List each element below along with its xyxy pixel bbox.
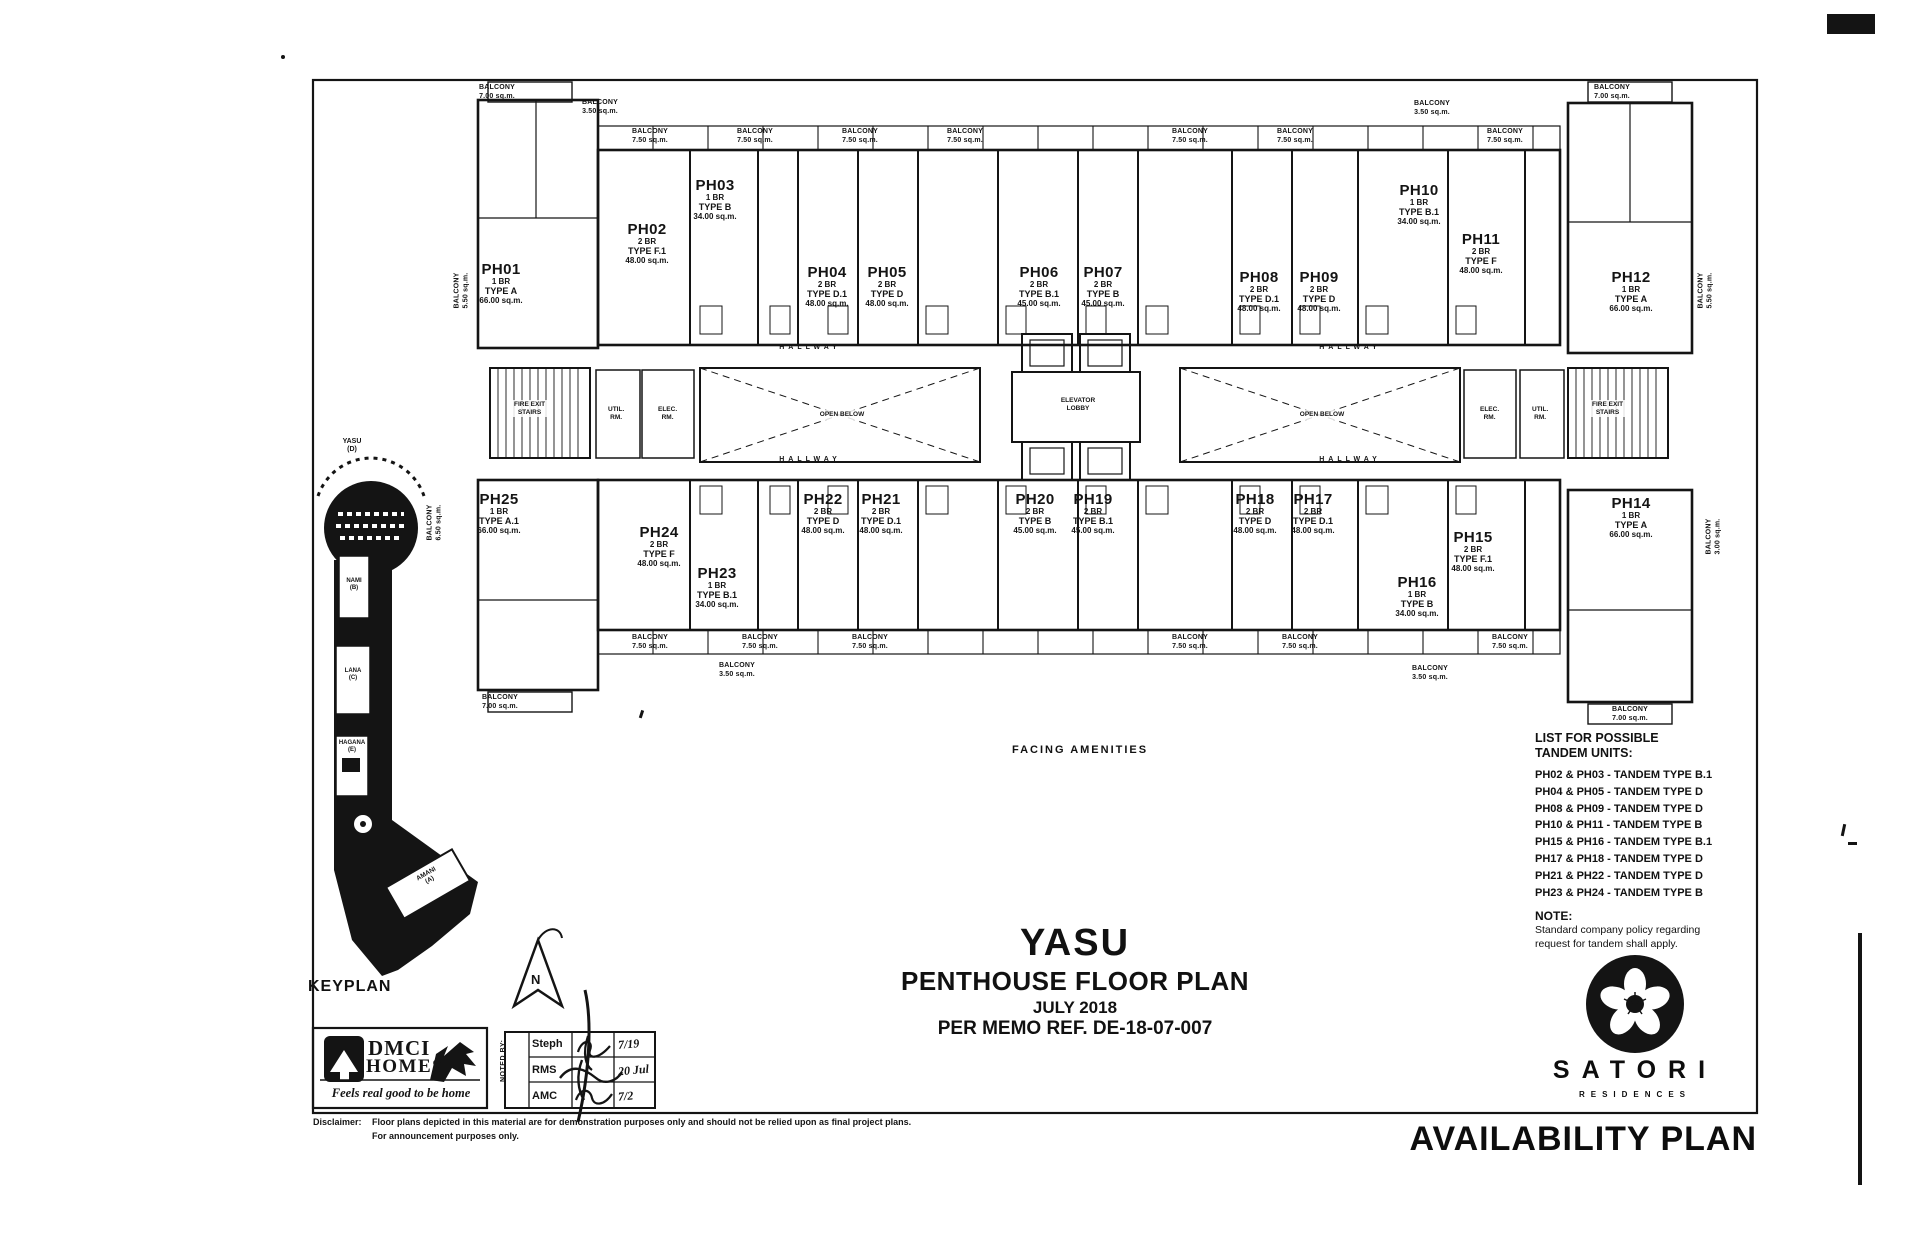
fire-exit-stairs-label: FIRE EXIT STAIRS [512,400,547,417]
tandem-heading: LIST FOR POSSIBLE [1535,731,1765,746]
elec-room-label: ELEC. RM. [656,405,679,422]
dmci-wordmark-line2: HOMES [366,1056,444,1078]
noted-by-date: 7/2 [617,1088,634,1104]
open-below-label: OPEN BELOW [1280,410,1364,420]
elec-room-label: ELEC. RM. [1478,405,1501,422]
tandem-item: PH10 & PH11 - TANDEM TYPE B [1535,817,1765,834]
unit-label-ph06: PH06 2 BR TYPE B.1 45.00 sq.m. [1008,265,1070,308]
balcony-label: BALCONY 7.50 sq.m. [615,128,685,145]
unit-label-ph23: PH23 1 BR TYPE B.1 34.00 sq.m. [686,566,748,609]
balcony-label: BALCONY 3.50 sq.m. [565,99,635,116]
keyplan-building-lana: LANA (C) [336,668,370,682]
hallway-label: HALLWAY [1285,344,1415,352]
signature-row1 [578,1036,610,1070]
tandem-item: PH21 & PH22 - TANDEM TYPE D [1535,868,1765,885]
balcony-label: BALCONY 7.50 sq.m. [720,128,790,145]
balcony-label: BALCONY 7.00 sq.m. [465,694,535,711]
pen-stroke [578,990,589,1122]
hallway-label: HALLWAY [745,344,875,352]
unit-label-ph07: PH07 2 BR TYPE B 45.00 sq.m. [1072,265,1134,308]
dmci-tagline: Feels real good to be home [318,1086,484,1101]
noted-by-name: Steph [532,1038,563,1050]
noted-by-name: RMS [532,1064,556,1076]
unit-label-ph02: PH02 2 BR TYPE F.1 48.00 sq.m. [616,222,678,265]
unit-label-ph09: PH09 2 BR TYPE D 48.00 sq.m. [1288,270,1350,313]
open-below-label: OPEN BELOW [800,410,884,420]
disclaimer-label: Disclaimer: [313,1117,362,1127]
plan-title: PENTHOUSE FLOOR PLAN [880,966,1270,997]
util-room-label: UTIL. RM. [1530,405,1550,422]
unit-label-ph17: PH17 2 BR TYPE D.1 48.00 sq.m. [1282,492,1344,535]
tandem-item: PH08 & PH09 - TANDEM TYPE D [1535,801,1765,818]
unit-label-ph18: PH18 2 BR TYPE D 48.00 sq.m. [1224,492,1286,535]
unit-label-ph22: PH22 2 BR TYPE D 48.00 sq.m. [792,492,854,535]
unit-label-ph21: PH21 2 BR TYPE D.1 48.00 sq.m. [850,492,912,535]
balcony-label: BALCONY 7.50 sq.m. [1155,128,1225,145]
balcony-label: BALCONY 7.00 sq.m. [1577,84,1647,101]
satori-wordmark: SATORI [1525,1056,1745,1085]
satori-logo-icon [1586,955,1684,1053]
balcony-label: BALCONY 7.50 sq.m. [725,634,795,651]
hallway-label: HALLWAY [1285,456,1415,464]
noted-by-name: AMC [532,1090,557,1102]
tower-ph01 [478,82,598,348]
balcony-label: BALCONY 7.00 sq.m. [462,84,532,101]
north-arrow-icon [514,929,562,1006]
balcony-label-vertical: BALCONY 5.50 sq.m. [454,256,471,326]
unit-label-ph16: PH16 1 BR TYPE B 34.00 sq.m. [1386,575,1448,618]
balcony-label: BALCONY 3.50 sq.m. [1395,665,1465,682]
noted-by-label: NOTED BY: [500,1040,507,1082]
availability-plan-sheet: PH01 1 BR TYPE A 66.00 sq.m. PH02 2 BR T… [0,0,1920,1255]
unit-label-ph05: PH05 2 BR TYPE D 48.00 sq.m. [856,265,918,308]
unit-label-ph08: PH08 2 BR TYPE D.1 48.00 sq.m. [1228,270,1290,313]
balcony-label-vertical: BALCONY 5.50 sq.m. [1698,256,1715,326]
top-wing [598,126,1560,345]
elevator-lobby-label: ELEVATOR LOBBY [1044,396,1112,413]
availability-plan-title: AVAILABILITY PLAN [1409,1120,1757,1159]
balcony-label: BALCONY 3.50 sq.m. [702,662,772,679]
balcony-label: BALCONY 7.50 sq.m. [930,128,1000,145]
unit-label-ph01: PH01 1 BR TYPE A 66.00 sq.m. [470,262,532,305]
north-label: N [531,972,540,987]
disclaimer-text: For announcement purposes only. [372,1131,519,1141]
tandem-item: PH04 & PH05 - TANDEM TYPE D [1535,784,1765,801]
keyplan-building-hagana: HAGANA (E) [334,740,370,754]
tandem-heading: TANDEM UNITS: [1535,746,1765,761]
tandem-item: PH17 & PH18 - TANDEM TYPE D [1535,851,1765,868]
fire-exit-stairs-label: FIRE EXIT STAIRS [1590,400,1625,417]
memo-reference: PER MEMO REF. DE-18-07-007 [880,1018,1270,1040]
balcony-label: BALCONY 7.50 sq.m. [1265,634,1335,651]
unit-label-ph19: PH19 2 BR TYPE B.1 45.00 sq.m. [1062,492,1124,535]
tandem-item: PH02 & PH03 - TANDEM TYPE B.1 [1535,767,1765,784]
project-name: YASU [880,922,1270,965]
balcony-label: BALCONY 7.50 sq.m. [1470,128,1540,145]
disclaimer-text: Floor plans depicted in this material ar… [372,1117,1092,1127]
balcony-label: BALCONY 7.50 sq.m. [1260,128,1330,145]
tandem-item: PH15 & PH16 - TANDEM TYPE B.1 [1535,834,1765,851]
balcony-label: BALCONY 3.50 sq.m. [1397,100,1467,117]
unit-label-ph25: PH25 1 BR TYPE A.1 66.00 sq.m. [468,492,530,535]
unit-label-ph20: PH20 2 BR TYPE B 45.00 sq.m. [1004,492,1066,535]
balcony-label: BALCONY 7.50 sq.m. [615,634,685,651]
keyplan-graphic [318,458,478,976]
tandem-note: request for tandem shall apply. [1535,937,1765,951]
balcony-label: BALCONY 7.50 sq.m. [1155,634,1225,651]
noted-by-date: 20 Jul [617,1062,649,1080]
unit-label-ph12: PH12 1 BR TYPE A 66.00 sq.m. [1600,270,1662,313]
balcony-label: BALCONY 7.00 sq.m. [1595,706,1665,723]
keyplan-building-yasu: YASU (D) [330,438,374,454]
facing-amenities-label: FACING AMENITIES [1012,744,1148,756]
satori-residences-label: RESIDENCES [1525,1090,1745,1099]
unit-label-ph14: PH14 1 BR TYPE A 66.00 sq.m. [1600,496,1662,539]
plan-date: JULY 2018 [880,998,1270,1018]
hallway-label: HALLWAY [745,456,875,464]
tandem-note: Standard company policy regarding [1535,923,1765,937]
tandem-item: PH23 & PH24 - TANDEM TYPE B [1535,885,1765,902]
unit-label-ph24: PH24 2 BR TYPE F 48.00 sq.m. [628,525,690,568]
util-room-label: UTIL. RM. [606,405,626,422]
balcony-label: BALCONY 7.50 sq.m. [835,634,905,651]
unit-label-ph04: PH04 2 BR TYPE D.1 48.00 sq.m. [796,265,858,308]
balcony-label-vertical: BALCONY 6.50 sq.m. [427,488,444,558]
keyplan-title: KEYPLAN [308,978,391,996]
unit-label-ph10: PH10 1 BR TYPE B.1 34.00 sq.m. [1388,183,1450,226]
tandem-units-list: LIST FOR POSSIBLE TANDEM UNITS: PH02 & P… [1535,731,1765,951]
balcony-label: BALCONY 7.50 sq.m. [1475,634,1545,651]
keyplan-building-nami: NAMI (B) [339,578,369,592]
balcony-label-vertical: BALCONY 3.00 sq.m. [1706,502,1723,572]
unit-label-ph03: PH03 1 BR TYPE B 34.00 sq.m. [684,178,746,221]
noted-by-date: 7/19 [617,1036,640,1053]
balcony-label: BALCONY 7.50 sq.m. [825,128,895,145]
unit-label-ph11: PH11 2 BR TYPE F 48.00 sq.m. [1450,232,1512,275]
tandem-note-heading: NOTE: [1535,909,1765,923]
unit-label-ph15: PH15 2 BR TYPE F.1 48.00 sq.m. [1442,530,1504,573]
